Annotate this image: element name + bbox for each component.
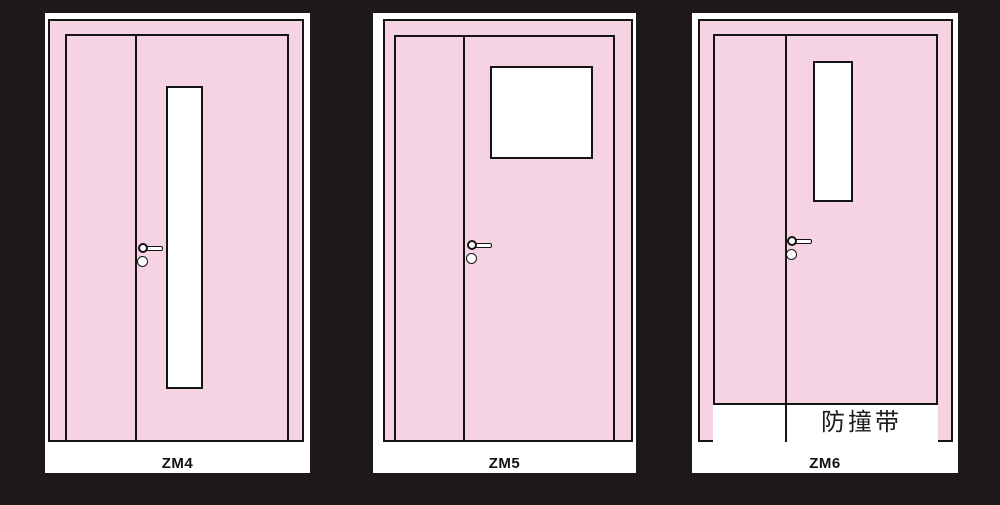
- door-model-label: ZM5: [373, 455, 636, 472]
- lock-cylinder: [137, 256, 148, 267]
- vision-panel-window: [813, 61, 853, 202]
- door-handle-rose: [467, 240, 477, 250]
- door-card-zm5: ZM5: [373, 13, 636, 473]
- bump-strip-label: 防撞带: [785, 407, 938, 439]
- lock-cylinder: [466, 253, 477, 264]
- door-handle-rose: [787, 236, 797, 246]
- lock-cylinder: [786, 249, 797, 260]
- vision-panel-window: [490, 66, 593, 159]
- door-card-zm6: 防撞带 ZM6: [692, 13, 958, 473]
- leaf-divider-line: [135, 34, 137, 442]
- door-card-zm4: ZM4: [45, 13, 310, 473]
- vision-panel-window: [166, 86, 203, 389]
- drawing-canvas: ZM4 ZM5 防撞带 ZM6: [0, 0, 1000, 505]
- leaf-divider-line: [463, 35, 465, 442]
- door-model-label: ZM6: [692, 455, 958, 472]
- door-model-label: ZM4: [45, 455, 310, 472]
- door-handle-rose: [138, 243, 148, 253]
